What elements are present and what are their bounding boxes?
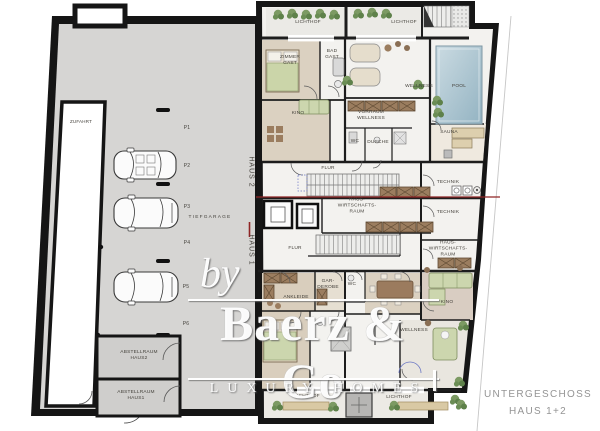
caption-line1: UNTERGESCHOSS [472, 386, 600, 403]
entry-stairs [424, 6, 469, 27]
watermark-tick [433, 370, 436, 391]
trellis-grid [452, 6, 469, 27]
stairs-lower [316, 235, 400, 254]
storage-rooms [97, 336, 180, 416]
car-icon [114, 269, 178, 305]
caption-line2: HAUS 1+2 [472, 403, 600, 420]
car-icon [114, 148, 176, 182]
car-icon [114, 195, 178, 231]
floorplan-page: LICHTHOFLICHTHOFZIMMER GASTBAD GASTKINOW… [0, 0, 600, 431]
elevator-icon [297, 204, 318, 228]
bed-zimmer-gast [266, 50, 299, 92]
plan-caption: UNTERGESCHOSS HAUS 1+2 [472, 386, 600, 420]
watermark-tagline: LUXURY HOMES [188, 381, 440, 397]
wc-haus1-fixtures [348, 275, 354, 281]
watermark-by: by [200, 250, 240, 298]
elevator-icon [264, 201, 292, 228]
